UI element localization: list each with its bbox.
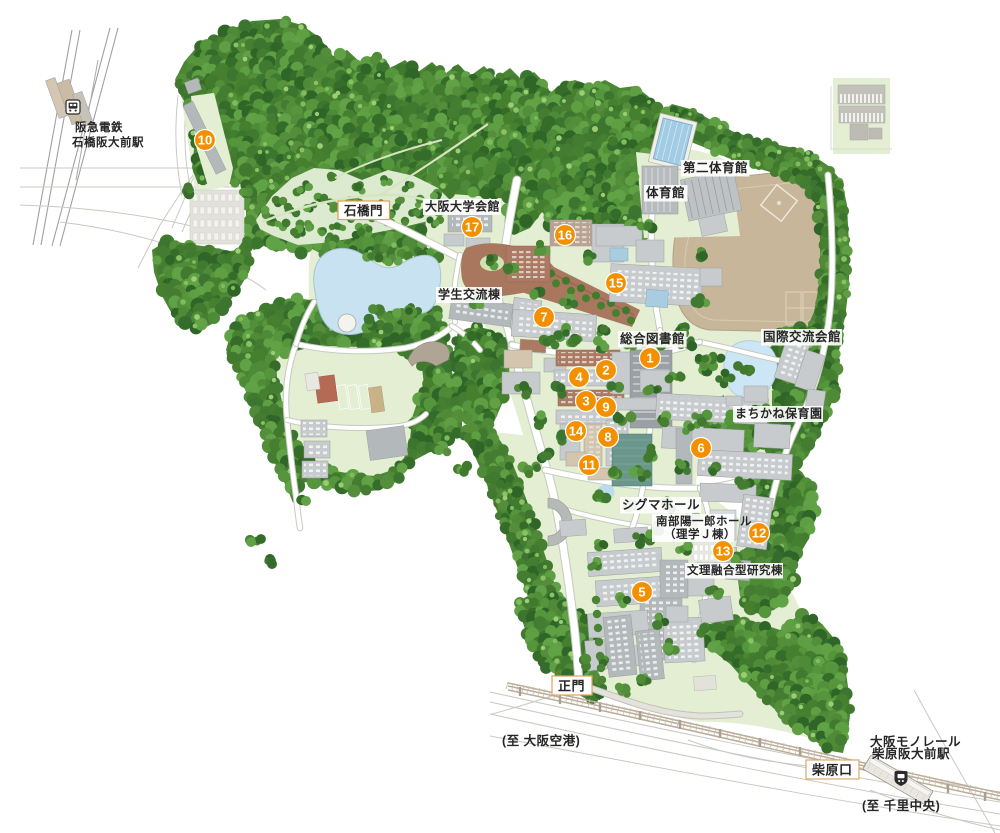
svg-text:8: 8 <box>604 430 611 445</box>
svg-text:13: 13 <box>716 544 730 559</box>
svg-text:阪急電鉄: 阪急電鉄 <box>75 120 123 134</box>
svg-text:柴原阪大前駅: 柴原阪大前駅 <box>871 746 950 761</box>
svg-text:シグマホール: シグマホール <box>622 497 700 512</box>
svg-text:16: 16 <box>558 228 572 243</box>
svg-text:3: 3 <box>582 394 589 409</box>
svg-text:15: 15 <box>609 276 623 291</box>
svg-text:11: 11 <box>582 458 596 473</box>
svg-text:14: 14 <box>569 424 584 439</box>
svg-text:12: 12 <box>752 526 766 541</box>
svg-text:10: 10 <box>198 133 212 148</box>
svg-text:まちかね保育園: まちかね保育園 <box>735 406 823 421</box>
svg-text:第二体育館: 第二体育館 <box>683 160 748 175</box>
svg-text:石橋門: 石橋門 <box>343 203 383 218</box>
svg-text:総合図書館: 総合図書館 <box>620 331 685 346</box>
svg-text:文理融合型研究棟: 文理融合型研究棟 <box>687 563 783 577</box>
svg-text:石橋阪大前駅: 石橋阪大前駅 <box>71 135 144 149</box>
svg-text:柴原口: 柴原口 <box>811 763 853 778</box>
svg-text:南部陽一郎ホール: 南部陽一郎ホール <box>656 514 752 528</box>
svg-text:(至 大阪空港): (至 大阪空港) <box>502 733 580 748</box>
svg-text:1: 1 <box>646 351 653 366</box>
svg-text:体育館: 体育館 <box>646 185 685 200</box>
svg-text:7: 7 <box>540 310 547 325</box>
svg-text:大阪大学会館: 大阪大学会館 <box>425 199 500 214</box>
svg-text:(至 千里中央): (至 千里中央) <box>862 798 940 813</box>
svg-text:2: 2 <box>602 363 609 378</box>
svg-text:17: 17 <box>465 220 479 235</box>
svg-text:正門: 正門 <box>558 679 585 694</box>
svg-text:学生交流棟: 学生交流棟 <box>438 287 501 302</box>
svg-text:6: 6 <box>697 441 704 456</box>
svg-text:国際交流会館: 国際交流会館 <box>763 329 841 344</box>
svg-text:5: 5 <box>638 585 645 600</box>
svg-text:（理学Ｊ棟）: （理学Ｊ棟） <box>664 527 736 541</box>
svg-text:9: 9 <box>602 400 609 415</box>
svg-text:4: 4 <box>575 370 583 385</box>
